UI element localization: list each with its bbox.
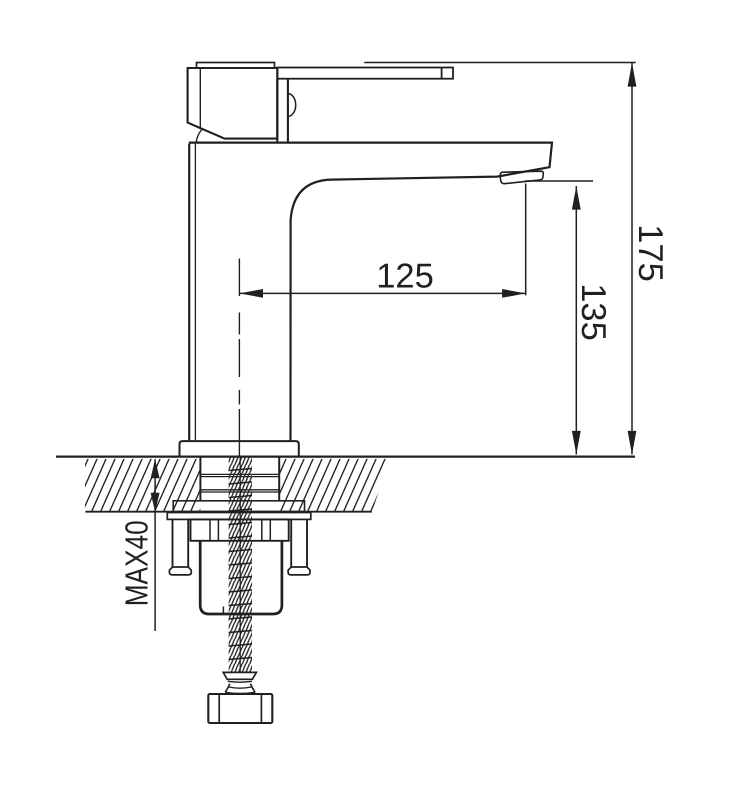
svg-text:135: 135 (574, 283, 612, 341)
svg-text:MAX40: MAX40 (119, 520, 155, 606)
svg-text:175: 175 (631, 224, 669, 282)
svg-text:125: 125 (376, 258, 434, 296)
